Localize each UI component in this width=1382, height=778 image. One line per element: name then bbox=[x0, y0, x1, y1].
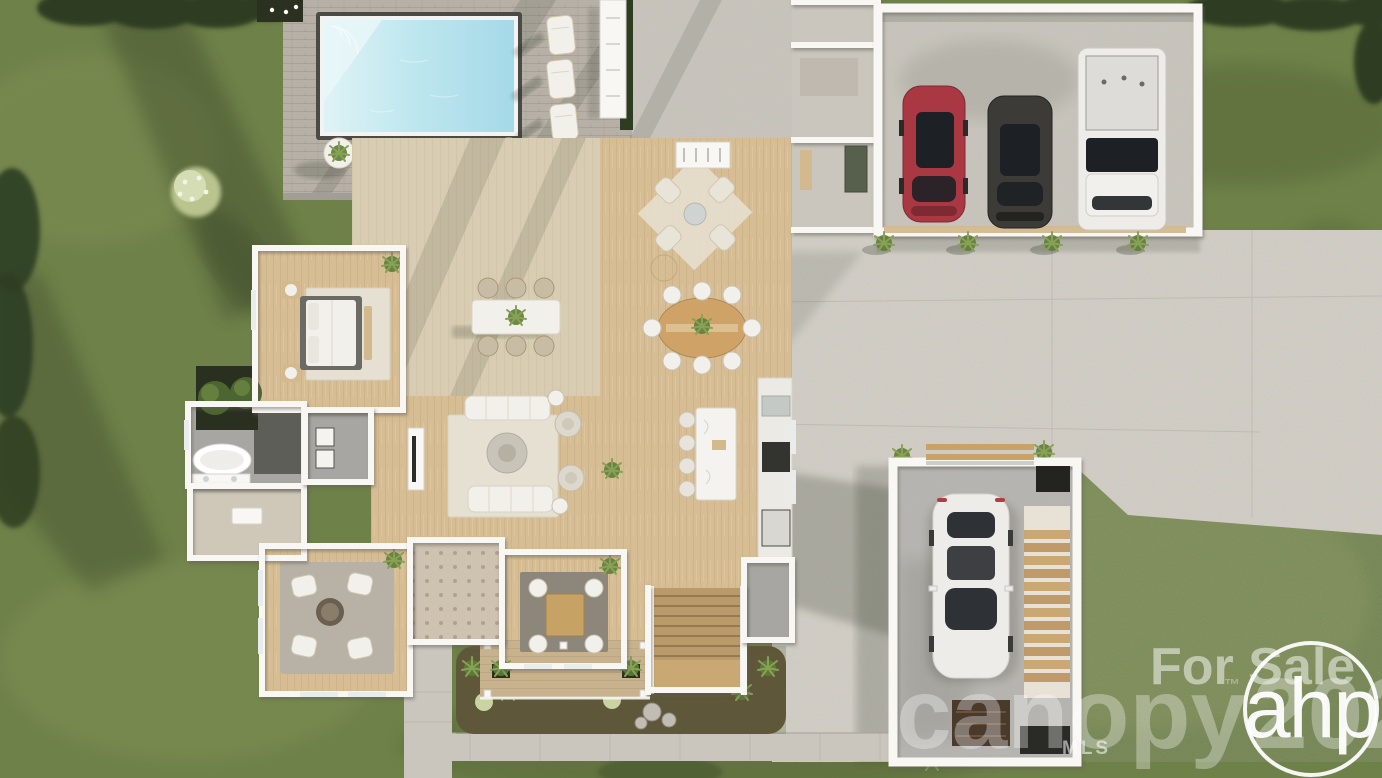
watermark-trademark: ™ bbox=[1224, 677, 1240, 694]
dark-suv bbox=[988, 96, 1052, 228]
doorway-dark bbox=[1036, 466, 1070, 492]
attached-garage bbox=[862, 8, 1198, 255]
refrigerator bbox=[762, 510, 790, 546]
garage-cast-shadow bbox=[856, 466, 893, 762]
aerial-property-render: For Sale canopy ™ 2025 MLS ahp bbox=[0, 0, 1382, 778]
white-pickup bbox=[1078, 48, 1166, 230]
sunroom-furniture bbox=[280, 549, 404, 674]
pantry-floor bbox=[744, 560, 792, 640]
flowering-tree bbox=[171, 167, 221, 217]
staircase bbox=[648, 586, 746, 694]
foyer-floor bbox=[410, 540, 502, 642]
laundry-floor bbox=[305, 410, 371, 482]
mudroom-floor bbox=[792, 0, 878, 232]
pergola-beams bbox=[926, 444, 1034, 465]
listing-watermark: For Sale canopy ™ 2025 MLS ahp bbox=[896, 638, 1382, 775]
bathroom-accent-tile bbox=[254, 412, 304, 474]
swimming-pool bbox=[316, 12, 522, 140]
sidewalk bbox=[404, 733, 906, 761]
white-sedan bbox=[927, 494, 1019, 682]
red-sedan bbox=[899, 86, 968, 222]
ahp-logo-text: ahp bbox=[1244, 661, 1378, 755]
outdoor-kitchen-counter bbox=[588, 0, 626, 118]
range bbox=[762, 442, 790, 472]
truck-bed bbox=[1086, 56, 1158, 130]
render-canvas: For Sale canopy ™ 2025 MLS ahp bbox=[0, 0, 1382, 778]
kitchen-island bbox=[696, 408, 736, 500]
stair-landing bbox=[654, 660, 740, 690]
watermark-mls: MLS bbox=[1062, 738, 1111, 759]
